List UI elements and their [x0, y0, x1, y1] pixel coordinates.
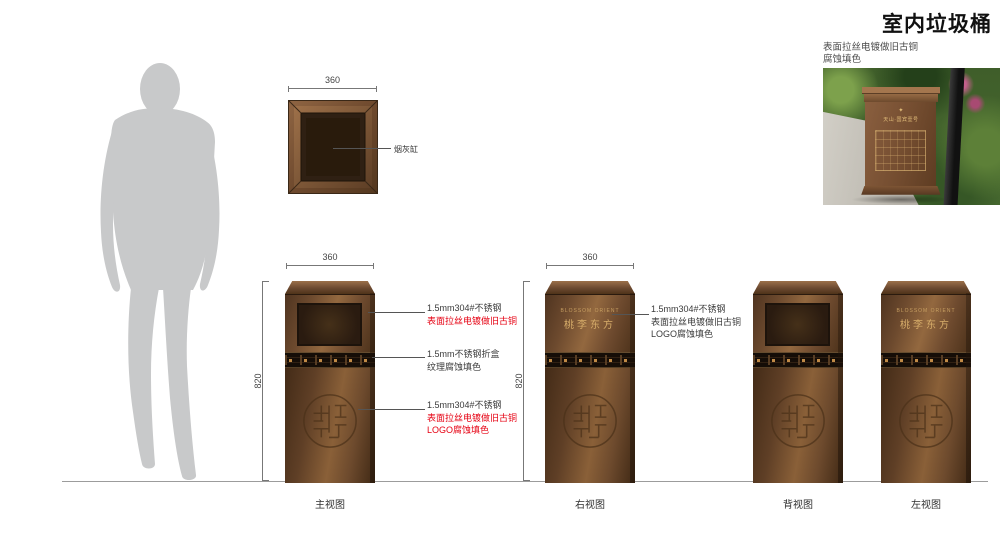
front-view-label: 主视图 [285, 496, 375, 511]
bin-upper-section [753, 294, 843, 352]
photo-caption: 表面拉丝电镀做旧古铜 腐蚀填色 [823, 42, 918, 65]
ashtray-leader-line [333, 148, 391, 149]
brand-name-cn: 桃李东方 [881, 316, 971, 331]
right-view-label: 右视图 [545, 496, 635, 511]
drawing-sheet: 室内垃圾桶 表面拉丝电镀做旧古铜 腐蚀填色 ✦ 天山·国宾壹号 [0, 0, 1000, 544]
annotation-line: 1.5mm304#不锈钢 [427, 302, 517, 315]
photo-bin-text: 天山·国宾壹号 [865, 116, 936, 123]
decorative-band [285, 352, 375, 368]
annotation-line: 纹理腐蚀填色 [427, 361, 500, 374]
ashtray-callout: 烟灰缸 [394, 144, 418, 155]
bin-lower-section [285, 368, 375, 483]
brand-panel: BLOSSOM ORIENT 桃李东方 [545, 308, 635, 331]
annotation-line: 1.5mm304#不锈钢 [427, 399, 517, 412]
annotation-line: 1.5mm不锈钢折盒 [427, 348, 500, 361]
reference-photo: ✦ 天山·国宾壹号 [823, 68, 1000, 205]
right-panel-leader-line [612, 314, 649, 315]
dimension-value: 360 [546, 252, 634, 262]
page-title: 室内垃圾桶 [882, 8, 992, 38]
bin-side-face [966, 293, 971, 483]
bin-front-view [285, 281, 375, 483]
annotation-line: 表面拉丝电镀做旧古铜 [427, 412, 517, 425]
bin-side-face [630, 293, 635, 483]
photo-bin-pattern-panel [875, 130, 926, 170]
photo-bin-base [861, 186, 940, 195]
photo-caption-line1: 表面拉丝电镀做旧古铜 [823, 42, 918, 54]
back-view-label: 背视图 [753, 496, 843, 511]
photo-bin-emblem-icon: ✦ [865, 107, 936, 114]
bin-lower-section [753, 368, 843, 483]
dimension-value: 360 [288, 75, 377, 85]
bin-back-view [753, 281, 843, 483]
bin-side-face [370, 293, 375, 483]
annotation-line: LOGO腐蚀填色 [651, 328, 741, 341]
dimension-value: 360 [286, 252, 374, 262]
human-scale-silhouette [85, 62, 235, 482]
right-view-height-dimension: 820 [523, 281, 524, 481]
bin-top-view [288, 100, 378, 194]
top-view-width-dimension: 360 [288, 88, 377, 89]
annotation-front-opening: 1.5mm304#不锈钢 表面拉丝电镀做旧古铜 [427, 302, 517, 327]
photo-bin-cornice [864, 94, 938, 102]
bin-lid [881, 281, 971, 294]
logo-emblem [301, 392, 359, 450]
right-view-width-dimension: 360 [546, 265, 634, 266]
annotation-line: 1.5mm304#不锈钢 [651, 303, 741, 316]
bin-lid [285, 281, 375, 294]
annotation-line: 表面拉丝电镀做旧古铜 [651, 316, 741, 329]
ground-line [62, 481, 988, 482]
left-view-label: 左视图 [881, 496, 971, 511]
photo-bin-body: ✦ 天山·国宾壹号 [865, 102, 936, 186]
bin-upper-section: BLOSSOM ORIENT 桃李东方 [881, 294, 971, 352]
bin-right-view: BLOSSOM ORIENT 桃李东方 [545, 281, 635, 483]
logo-emblem [897, 392, 955, 450]
front-logo-leader-line [358, 409, 425, 410]
photo-bronze-bin: ✦ 天山·国宾壹号 [865, 87, 936, 198]
brand-name-en: BLOSSOM ORIENT [881, 308, 971, 314]
bin-lower-section [545, 368, 635, 483]
decorative-band [753, 352, 843, 368]
annotation-line: 表面拉丝电镀做旧古铜 [427, 315, 517, 328]
trash-opening [297, 303, 362, 346]
front-opening-leader-line [368, 312, 425, 313]
photo-bin-cap [862, 87, 940, 94]
decorative-band [545, 352, 635, 368]
logo-emblem [561, 392, 619, 450]
trash-opening [765, 303, 830, 346]
annotation-front-band: 1.5mm不锈钢折盒 纹理腐蚀填色 [427, 348, 500, 373]
brand-name-cn: 桃李东方 [545, 316, 635, 331]
bin-left-view: BLOSSOM ORIENT 桃李东方 [881, 281, 971, 483]
bin-lid [753, 281, 843, 294]
annotation-line: LOGO腐蚀填色 [427, 424, 517, 437]
bin-lower-section [881, 368, 971, 483]
bin-upper-section [285, 294, 375, 352]
dimension-value: 820 [253, 373, 263, 388]
bin-upper-section: BLOSSOM ORIENT 桃李东方 [545, 294, 635, 352]
dimension-value: 820 [514, 373, 524, 388]
bin-side-face [838, 293, 843, 483]
decorative-band [881, 352, 971, 368]
annotation-right-panel: 1.5mm304#不锈钢 表面拉丝电镀做旧古铜 LOGO腐蚀填色 [651, 303, 741, 341]
front-view-width-dimension: 360 [286, 265, 374, 266]
annotation-front-logo: 1.5mm304#不锈钢 表面拉丝电镀做旧古铜 LOGO腐蚀填色 [427, 399, 517, 437]
bin-lid [545, 281, 635, 294]
brand-panel: BLOSSOM ORIENT 桃李东方 [881, 308, 971, 331]
logo-emblem [769, 392, 827, 450]
front-view-height-dimension: 820 [262, 281, 263, 481]
photo-caption-line2: 腐蚀填色 [823, 54, 918, 66]
front-band-leader-line [372, 357, 425, 358]
